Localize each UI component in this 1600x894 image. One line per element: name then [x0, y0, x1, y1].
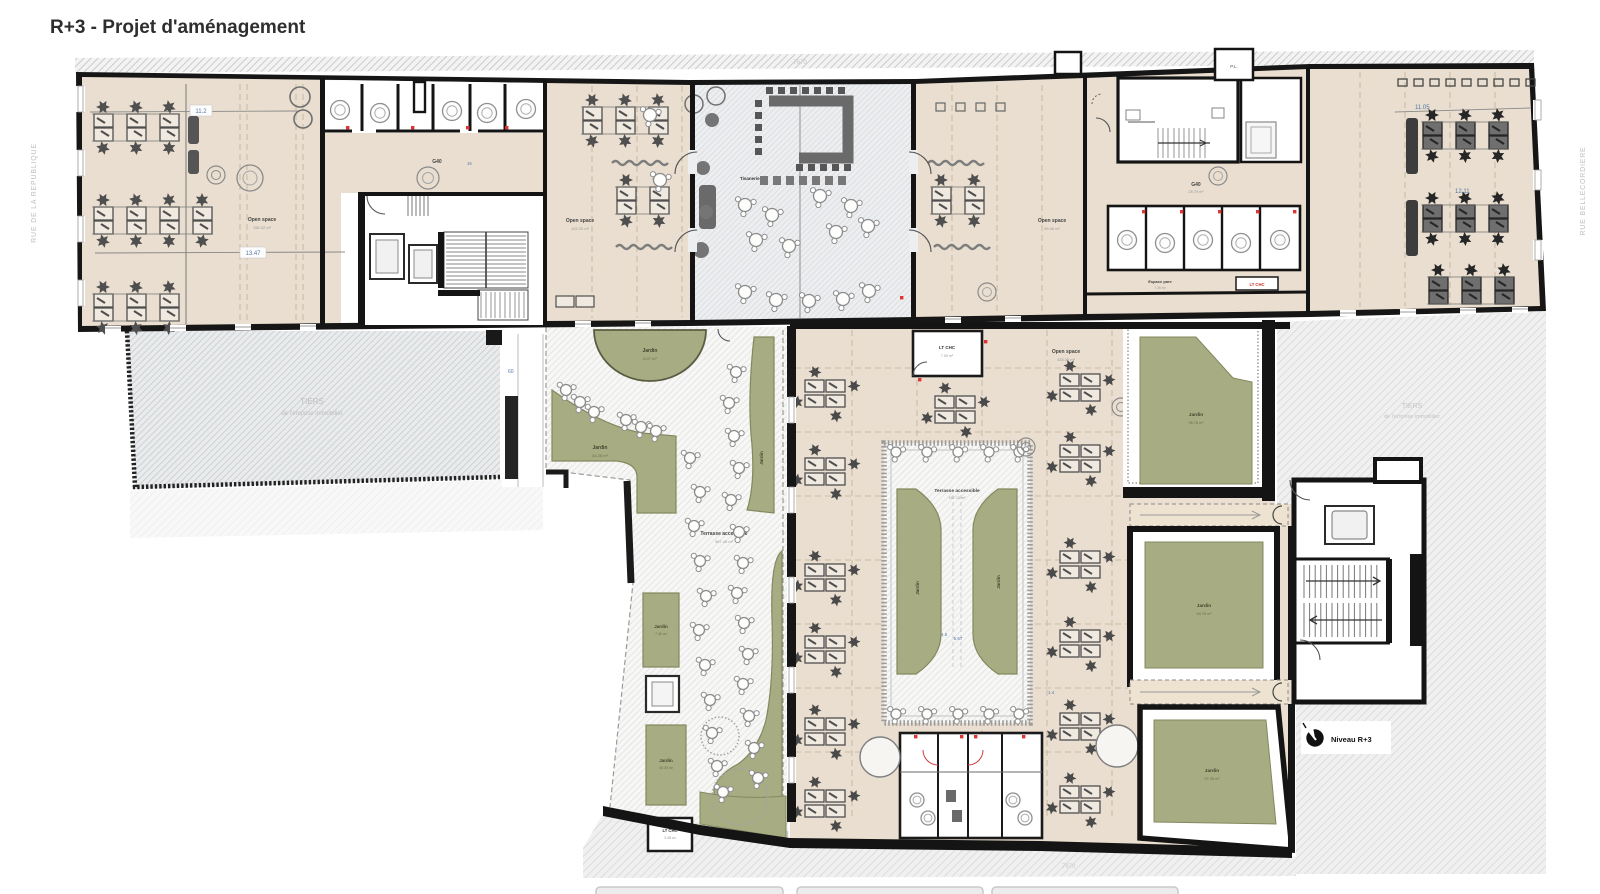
svg-text:P.L.: P.L. [1230, 64, 1237, 69]
svg-text:RUE BELLECORDIERE: RUE BELLECORDIERE [1580, 146, 1587, 235]
svg-text:Open space: Open space [566, 218, 595, 224]
svg-text:TIERS: TIERS [300, 397, 324, 406]
svg-text:G40: G40 [432, 159, 442, 165]
svg-text:60: 60 [508, 369, 514, 375]
svg-text:Jardin: Jardin [915, 581, 920, 595]
svg-text:96.76 m²: 96.76 m² [1189, 421, 1205, 425]
svg-text:44.26 m²: 44.26 m² [592, 453, 608, 458]
svg-text:TIERS: TIERS [1402, 403, 1423, 410]
svg-text:7.05 m²: 7.05 m² [941, 354, 954, 358]
svg-text:7.26 m²: 7.26 m² [1154, 286, 1166, 290]
svg-text:7.46 m²: 7.46 m² [655, 632, 668, 636]
svg-text:LT CHC: LT CHC [1249, 282, 1264, 287]
svg-text:97.06 m²: 97.06 m² [1205, 777, 1221, 781]
svg-text:Terrasse accessible: Terrasse accessible [934, 488, 980, 494]
svg-text:de l'emprise immobilier: de l'emprise immobilier [281, 411, 342, 417]
svg-text:Jardin: Jardin [659, 758, 673, 763]
svg-text:RUE DE LA REPUBLIQUE: RUE DE LA REPUBLIQUE [31, 143, 38, 243]
svg-text:G40: G40 [1191, 182, 1201, 188]
svg-text:Jardin: Jardin [996, 575, 1001, 589]
svg-text:4.5: 4.5 [941, 632, 948, 637]
svg-text:Open space: Open space [1038, 218, 1067, 224]
svg-text:1.4: 1.4 [1048, 690, 1055, 695]
svg-text:3.48 m²: 3.48 m² [664, 836, 677, 840]
svg-text:95.06 m²: 95.06 m² [1044, 226, 1060, 231]
svg-text:R+3 - Projet d'aménagement: R+3 - Projet d'aménagement [50, 17, 306, 38]
svg-text:7670: 7670 [793, 60, 807, 66]
svg-text:8.07 m²: 8.07 m² [643, 356, 657, 361]
svg-text:94.76 m²: 94.76 m² [1197, 612, 1213, 616]
svg-text:5.67: 5.67 [954, 636, 963, 641]
svg-text:Tisanerie: Tisanerie [740, 176, 760, 181]
svg-text:Jardin: Jardin [1189, 412, 1203, 418]
svg-text:Jardin: Jardin [654, 624, 668, 629]
svg-text:Jardin: Jardin [592, 445, 607, 451]
svg-text:Espace pare: Espace pare [1148, 279, 1172, 284]
svg-text:Jardin: Jardin [1197, 603, 1211, 609]
svg-text:11.05: 11.05 [1415, 105, 1430, 111]
svg-text:13.47: 13.47 [245, 251, 261, 257]
svg-text:367.45 m²: 367.45 m² [715, 539, 734, 544]
svg-text:Jardin: Jardin [759, 451, 764, 465]
svg-text:11.2: 11.2 [195, 109, 207, 115]
svg-text:7670: 7670 [1062, 864, 1076, 870]
svg-text:de l'emprise immobilier: de l'emprise immobilier [1384, 414, 1440, 420]
svg-text:Open space: Open space [1052, 349, 1081, 355]
svg-text:Jardin: Jardin [642, 348, 657, 354]
svg-text:16: 16 [467, 161, 472, 166]
svg-text:103.20 m²: 103.20 m² [571, 226, 590, 231]
svg-text:40.30 m²: 40.30 m² [659, 766, 674, 770]
svg-text:Open space: Open space [248, 217, 277, 223]
svg-text:LT CHC: LT CHC [939, 345, 956, 350]
svg-text:Niveau R+3: Niveau R+3 [1331, 735, 1372, 744]
svg-text:28.79 m²: 28.79 m² [1189, 190, 1205, 194]
svg-text:Jardin: Jardin [1205, 768, 1219, 774]
svg-text:156.32 m²: 156.32 m² [253, 225, 272, 230]
svg-text:187.15 m²: 187.15 m² [948, 496, 966, 500]
